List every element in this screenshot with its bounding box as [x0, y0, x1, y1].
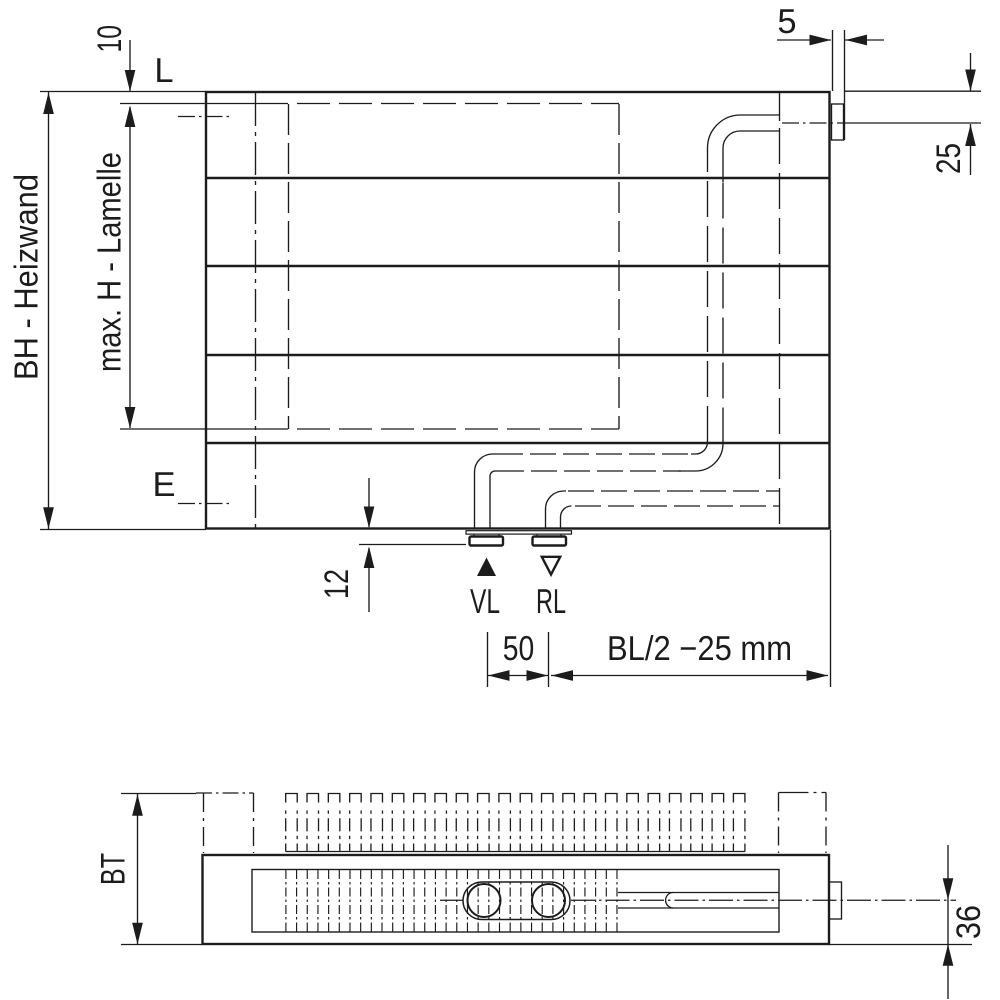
svg-text:50: 50	[503, 630, 535, 668]
svg-text:E: E	[152, 466, 175, 504]
svg-text:BT: BT	[95, 853, 133, 885]
svg-text:5: 5	[777, 3, 796, 41]
svg-text:10: 10	[91, 25, 129, 53]
svg-text:BH - Heizwand: BH - Heizwand	[8, 174, 45, 380]
svg-text:36: 36	[950, 905, 988, 939]
svg-text:VL: VL	[470, 583, 500, 621]
svg-text:L: L	[154, 52, 173, 90]
svg-text:BL/2 −25 mm: BL/2 −25 mm	[607, 630, 792, 668]
svg-text:RL: RL	[536, 583, 566, 621]
svg-text:25: 25	[930, 143, 968, 174]
svg-text:max. H - Lamelle: max. H - Lamelle	[91, 152, 128, 372]
svg-text:12: 12	[318, 569, 356, 599]
